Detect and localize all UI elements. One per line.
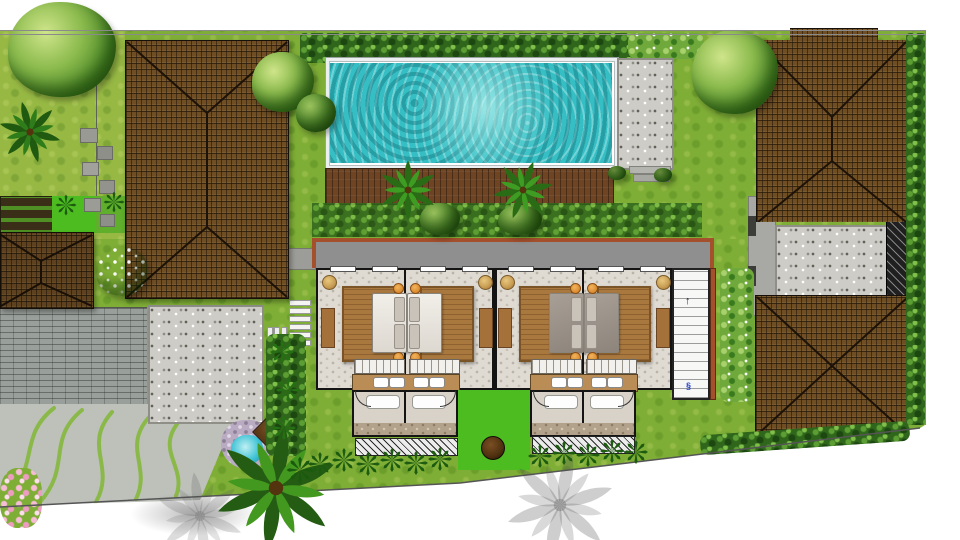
shower-floor-1 bbox=[354, 423, 456, 435]
palm-shadow-blob bbox=[130, 492, 260, 536]
corridor bbox=[312, 238, 714, 268]
gravel-terrace-poolside bbox=[617, 58, 674, 170]
flowering-tree-left bbox=[96, 246, 148, 296]
boundary-hedge-east bbox=[906, 33, 926, 425]
staircase bbox=[672, 268, 710, 400]
terrace-bush-1 bbox=[608, 166, 626, 180]
boundary-line-top bbox=[0, 30, 926, 35]
tree-top-left bbox=[8, 2, 116, 97]
parking-court bbox=[0, 307, 147, 405]
roof-ridge-lines bbox=[756, 296, 909, 436]
shrub-column-stairs bbox=[720, 268, 754, 402]
gravel-terrace-west bbox=[148, 305, 264, 424]
stair-marker: § bbox=[686, 382, 691, 391]
stair-up-arrow: ↑ bbox=[685, 296, 691, 307]
pool-deck bbox=[325, 168, 614, 205]
leaf-cluster-2 bbox=[498, 205, 542, 235]
shower-floor-2 bbox=[532, 423, 634, 435]
tree-right-of-pool bbox=[692, 30, 778, 114]
tree-over-left-roof-2 bbox=[296, 94, 336, 132]
leaf-cluster-1 bbox=[420, 203, 460, 235]
lower-left-pavilion-roof bbox=[0, 232, 94, 309]
swimming-pool bbox=[330, 63, 612, 163]
garden-pot bbox=[481, 436, 505, 460]
drain-grill-1 bbox=[355, 438, 458, 456]
drain-grill-2 bbox=[532, 436, 635, 454]
upper-right-pavilion-roof bbox=[756, 28, 908, 224]
terrace-bush-2 bbox=[654, 168, 672, 182]
hedge-light-extension bbox=[628, 33, 704, 59]
hedge-column-driveway bbox=[266, 334, 306, 456]
roof-ridge-lines bbox=[1, 233, 93, 308]
stair-frame bbox=[710, 268, 716, 400]
site-plan: ↑ § bbox=[0, 0, 960, 540]
gravel-terrace-east bbox=[775, 225, 890, 299]
flower-bed-bottom-left bbox=[0, 468, 42, 528]
roof-ridge-lines bbox=[757, 29, 907, 223]
lower-right-pavilion-roof bbox=[755, 295, 910, 437]
garden-bed-rows bbox=[0, 196, 54, 235]
boundary-line-east bbox=[925, 31, 926, 425]
path-post-1 bbox=[748, 216, 756, 236]
